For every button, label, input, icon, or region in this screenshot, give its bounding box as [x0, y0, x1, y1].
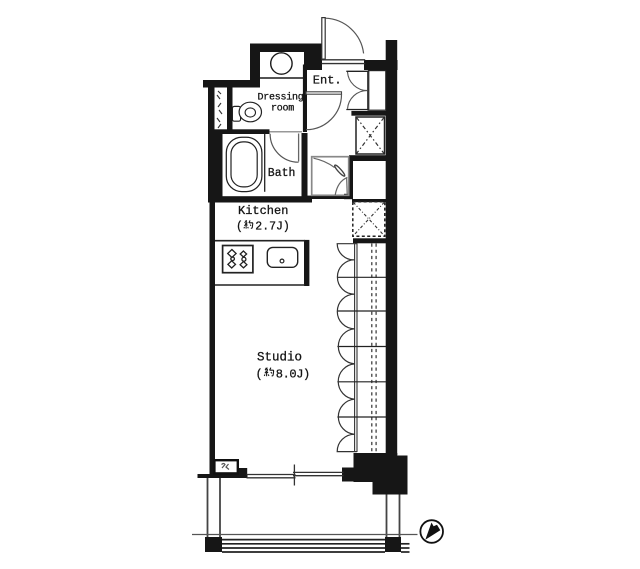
svg-text:room: room	[271, 104, 294, 115]
svg-text:Dressing: Dressing	[258, 92, 304, 104]
svg-text:2.7J): 2.7J)	[255, 220, 290, 233]
svg-text:Ent.: Ent.	[313, 74, 342, 88]
svg-text:(: (	[256, 368, 263, 382]
svg-text:Bath: Bath	[268, 167, 296, 180]
svg-text:(: (	[236, 220, 243, 233]
svg-text:8.0J): 8.0J)	[276, 368, 310, 382]
svg-text:Kitchen: Kitchen	[238, 204, 288, 218]
svg-text:Studio: Studio	[257, 351, 302, 365]
